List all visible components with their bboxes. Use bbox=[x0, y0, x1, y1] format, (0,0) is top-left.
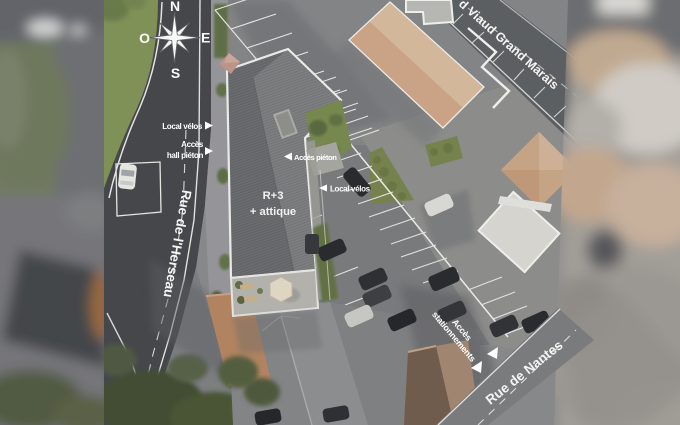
svg-text:N: N bbox=[170, 0, 180, 14]
svg-text:+ attique: + attique bbox=[250, 206, 296, 218]
svg-text:Accès piéton: Accès piéton bbox=[294, 153, 337, 162]
svg-text:O: O bbox=[139, 30, 150, 46]
svg-text:E: E bbox=[201, 30, 210, 46]
svg-text:hall piéton: hall piéton bbox=[167, 151, 204, 160]
svg-text:Accès: Accès bbox=[181, 140, 204, 149]
svg-text:Local vélos: Local vélos bbox=[330, 185, 371, 194]
svg-text:Local vélos: Local vélos bbox=[162, 122, 203, 131]
svg-text:R+3: R+3 bbox=[263, 190, 284, 202]
svg-text:S: S bbox=[171, 65, 180, 81]
